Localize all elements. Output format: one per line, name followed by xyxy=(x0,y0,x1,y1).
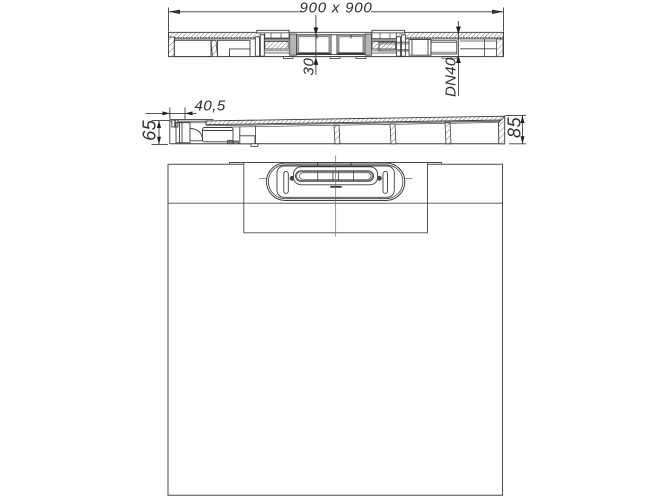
svg-text:65: 65 xyxy=(140,119,160,141)
svg-text:900 x 900: 900 x 900 xyxy=(299,0,372,16)
svg-text:30: 30 xyxy=(301,58,318,76)
svg-text:DN40: DN40 xyxy=(442,57,459,97)
svg-text:85: 85 xyxy=(505,116,525,138)
svg-text:40,5: 40,5 xyxy=(195,98,226,115)
